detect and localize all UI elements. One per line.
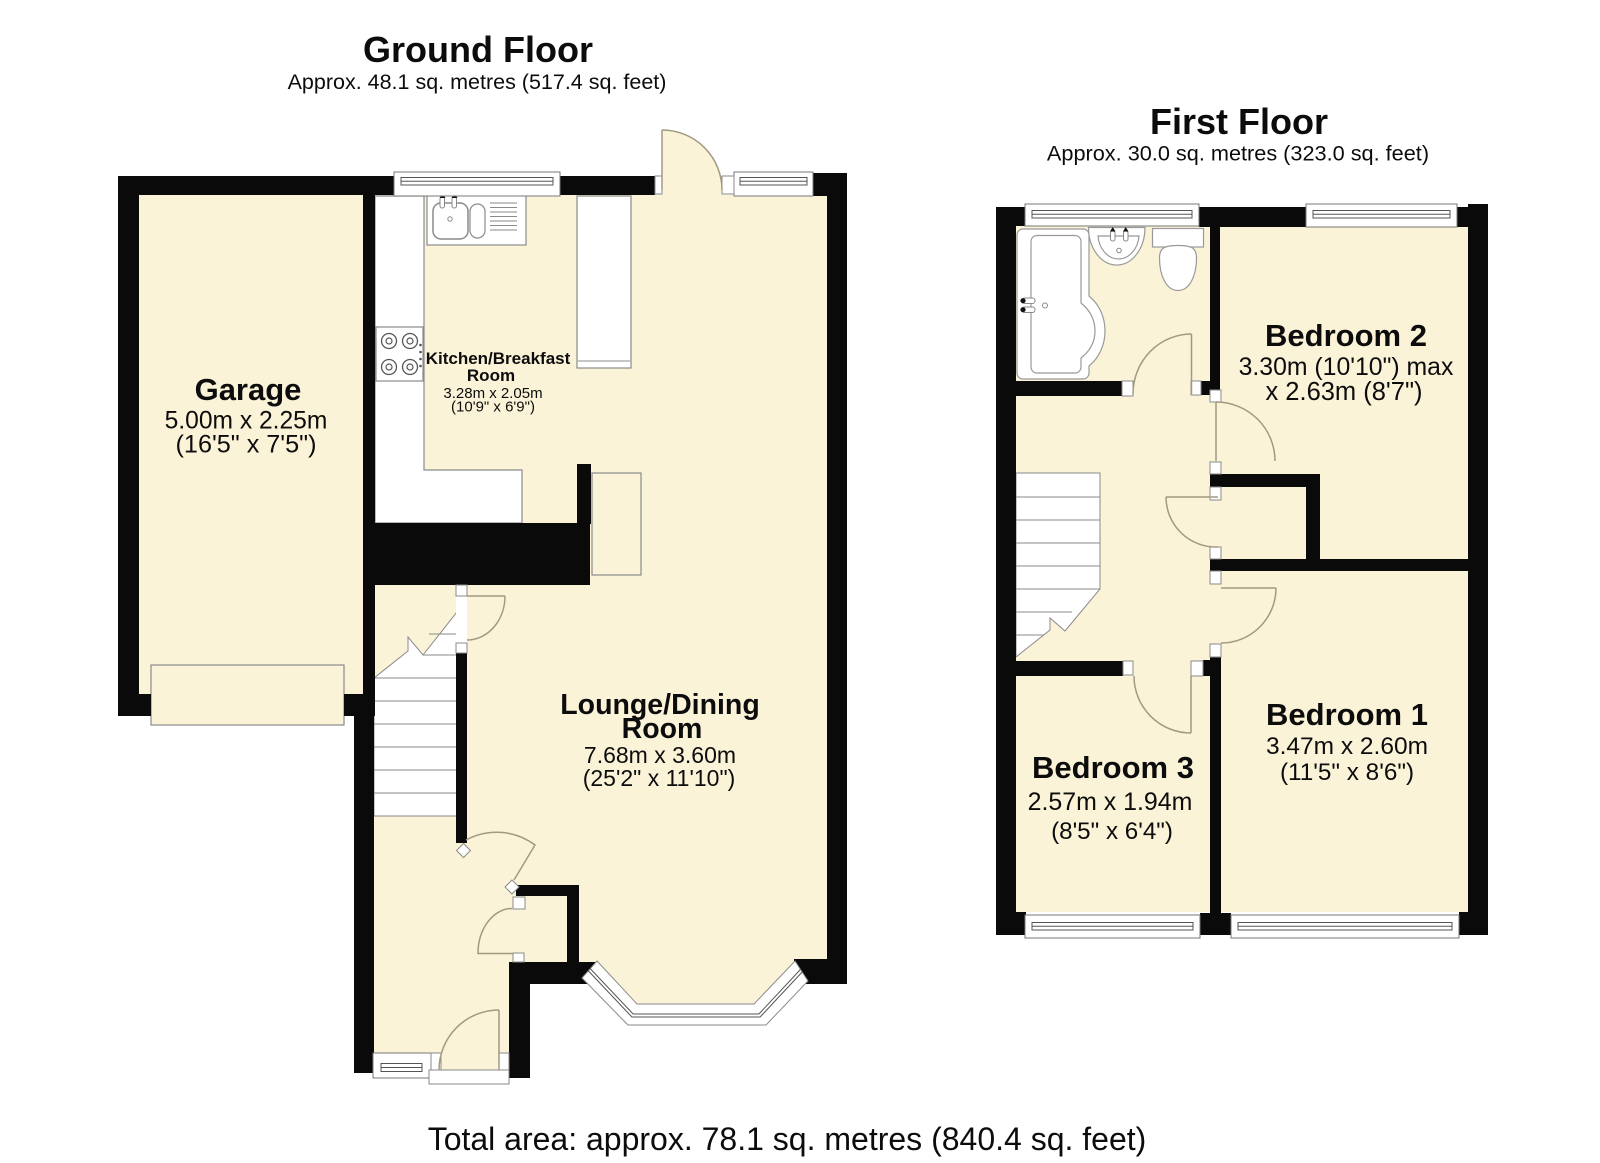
svg-text:Room: Room	[467, 366, 515, 385]
svg-text:Garage: Garage	[195, 372, 302, 407]
svg-text:(11'5" x 8'6"): (11'5" x 8'6")	[1280, 759, 1414, 786]
svg-text:Bedroom 2: Bedroom 2	[1265, 318, 1427, 353]
svg-text:(16'5" x 7'5"): (16'5" x 7'5")	[176, 431, 317, 459]
svg-text:(10'9" x 6'9"): (10'9" x 6'9")	[451, 399, 535, 416]
svg-text:Bedroom 1: Bedroom 1	[1266, 697, 1428, 732]
svg-text:3.47m x 2.60m: 3.47m x 2.60m	[1266, 733, 1428, 760]
svg-text:3.30m (10'10") max: 3.30m (10'10") max	[1239, 354, 1454, 381]
svg-text:Approx. 30.0 sq. metres (323.0: Approx. 30.0 sq. metres (323.0 sq. feet)	[1047, 141, 1429, 166]
svg-text:(8'5" x 6'4"): (8'5" x 6'4")	[1051, 818, 1173, 845]
svg-text:Room: Room	[622, 713, 703, 745]
svg-text:Bedroom 3: Bedroom 3	[1032, 750, 1194, 785]
svg-text:First Floor: First Floor	[1150, 101, 1328, 142]
svg-text:2.57m x 1.94m: 2.57m x 1.94m	[1028, 788, 1193, 816]
svg-text:x 2.63m (8'7"): x 2.63m (8'7")	[1265, 378, 1422, 406]
svg-text:Ground Floor: Ground Floor	[363, 29, 593, 70]
svg-text:(25'2" x 11'10"): (25'2" x 11'10")	[583, 765, 736, 791]
svg-text:Total area: approx. 78.1 sq. m: Total area: approx. 78.1 sq. metres (840…	[428, 1121, 1147, 1157]
svg-text:Approx. 48.1 sq. metres (517.4: Approx. 48.1 sq. metres (517.4 sq. feet)	[288, 70, 667, 94]
